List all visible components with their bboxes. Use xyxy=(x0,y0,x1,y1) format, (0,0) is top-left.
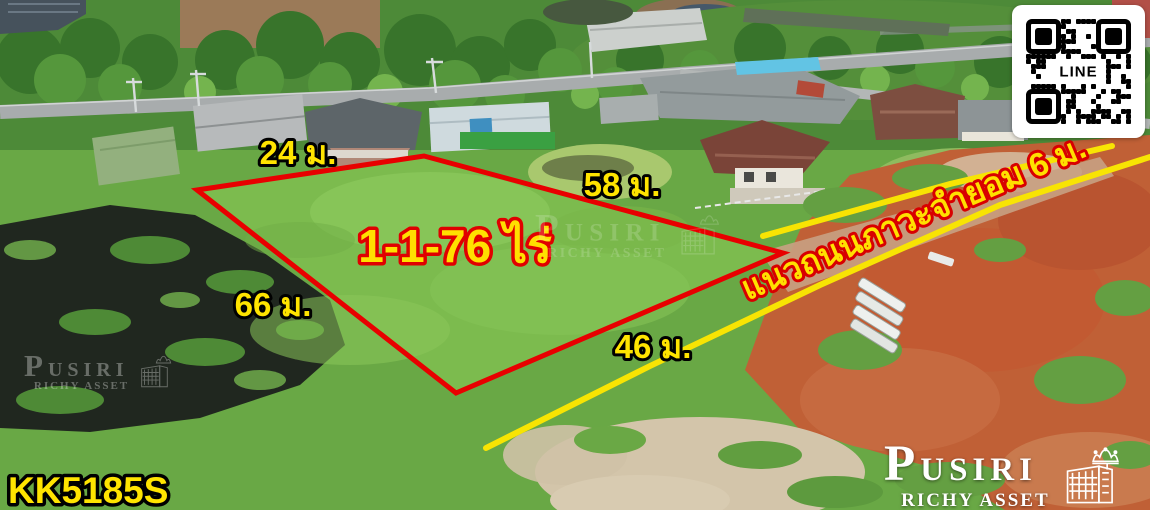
qr-finder-icon xyxy=(1026,19,1061,54)
qr-finder-icon xyxy=(1096,19,1131,54)
dim-label-bottom: 46 ม. xyxy=(615,328,692,365)
area-label: 1-1-76 ไร่ xyxy=(358,220,552,272)
building-icon xyxy=(135,352,173,392)
building-icon xyxy=(674,211,722,261)
dim-label-upper-right: 58 ม. xyxy=(584,166,661,203)
qr-line-label: LINE xyxy=(1054,62,1102,81)
logo-name: PUSIRI xyxy=(884,438,1050,489)
crown-icon xyxy=(1092,448,1118,463)
real-estate-photo-ad: 24 ม. 58 ม. 66 ม. 46 ม. 1-1-76 ไร่ แนวถน… xyxy=(0,0,1150,510)
watermark-subtitle: RICHY ASSET xyxy=(34,381,129,392)
building-icon xyxy=(1056,444,1122,510)
listing-code: KK5185S xyxy=(8,470,168,510)
watermark-subtitle: RICHY ASSET xyxy=(547,247,666,261)
company-logo: PUSIRI RICHY ASSET xyxy=(884,438,1122,510)
dim-label-left: 66 ม. xyxy=(235,286,312,323)
watermark-left: PUSIRI RICHY ASSET xyxy=(24,350,173,392)
line-qr-code: LINE xyxy=(1012,5,1145,138)
qr-finder-icon xyxy=(1026,89,1061,124)
logo-subtitle: RICHY ASSET xyxy=(901,491,1050,510)
dim-label-top: 24 ม. xyxy=(260,134,337,171)
watermark-center: PUSIRI RICHY ASSET xyxy=(535,208,721,261)
watermark-name: PUSIRI xyxy=(535,208,666,247)
watermark-name: PUSIRI xyxy=(24,350,129,381)
